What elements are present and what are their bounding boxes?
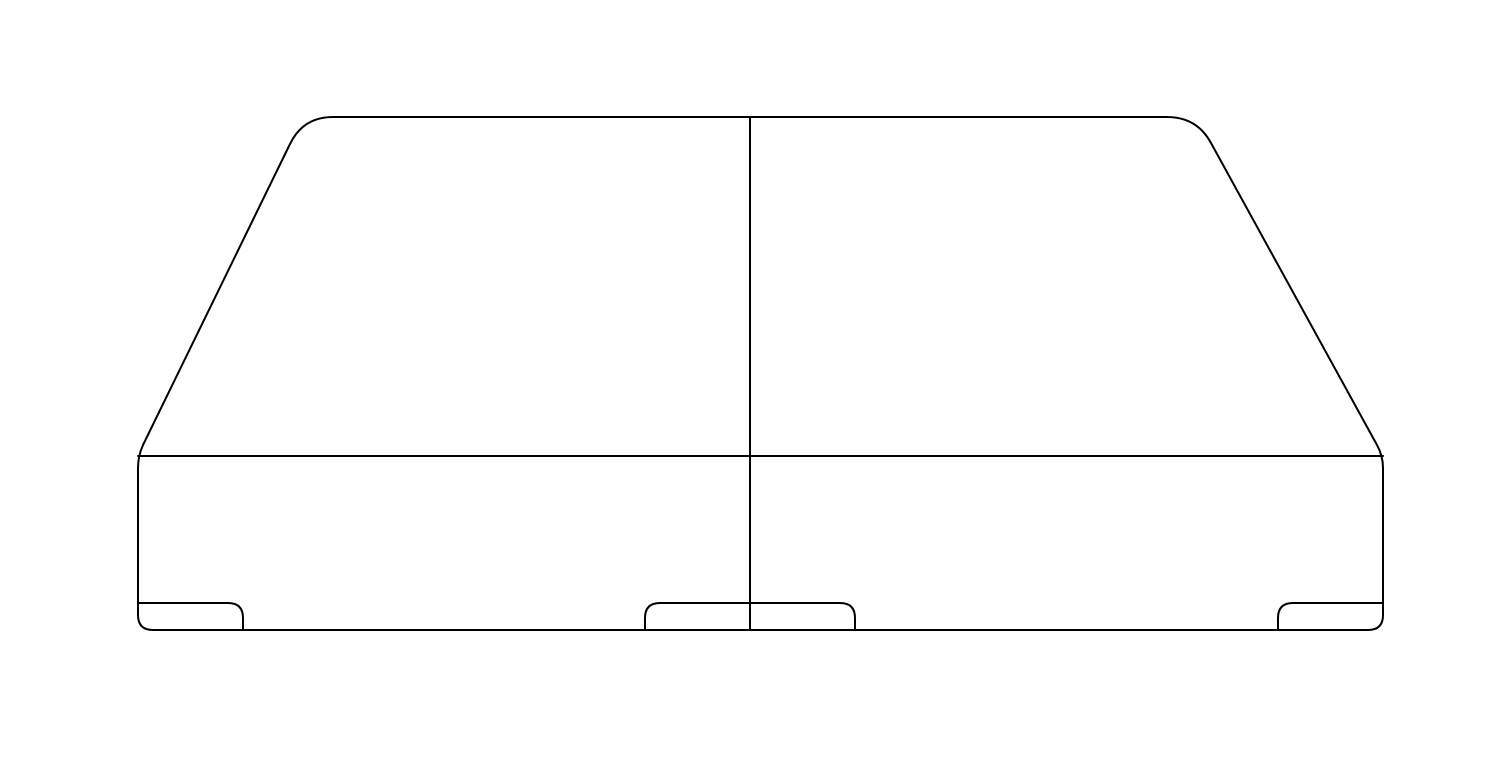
illustration-canvas	[0, 0, 1500, 768]
left-glide-foot	[138, 603, 243, 630]
right-glide-foot	[1278, 603, 1383, 630]
foundation-silhouette	[138, 117, 1383, 630]
foundation-line-drawing	[0, 0, 1500, 768]
